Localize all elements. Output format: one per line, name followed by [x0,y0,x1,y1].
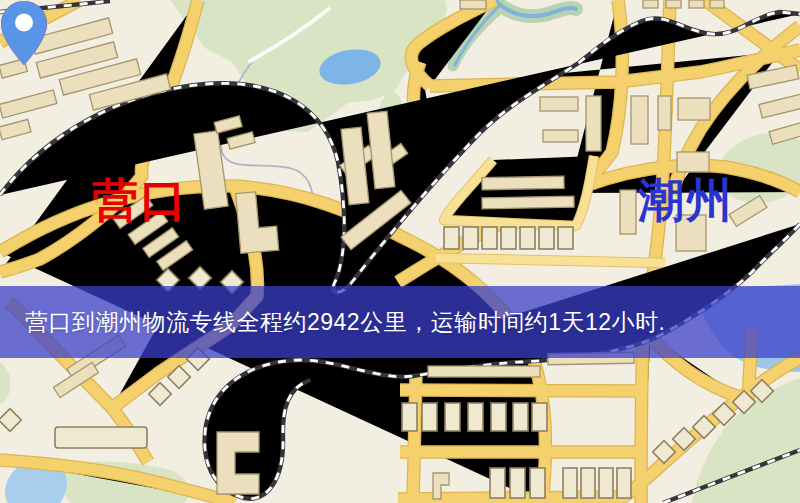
route-map: 营口 潮州 营口到潮州物流专线全程约2942公里，运输时间约1天12小时. [0,0,800,503]
origin-city-label: 营口 [92,177,188,223]
destination-pin-icon [0,0,48,66]
route-info-text: 营口到潮州物流专线全程约2942公里，运输时间约1天12小时. [25,307,665,338]
destination-pin-body [1,1,47,65]
destination-pin-hole [15,14,33,32]
destination-city-label: 潮州 [638,177,734,223]
map-image [0,0,800,503]
route-info-banner: 营口到潮州物流专线全程约2942公里，运输时间约1天12小时. [0,286,800,358]
